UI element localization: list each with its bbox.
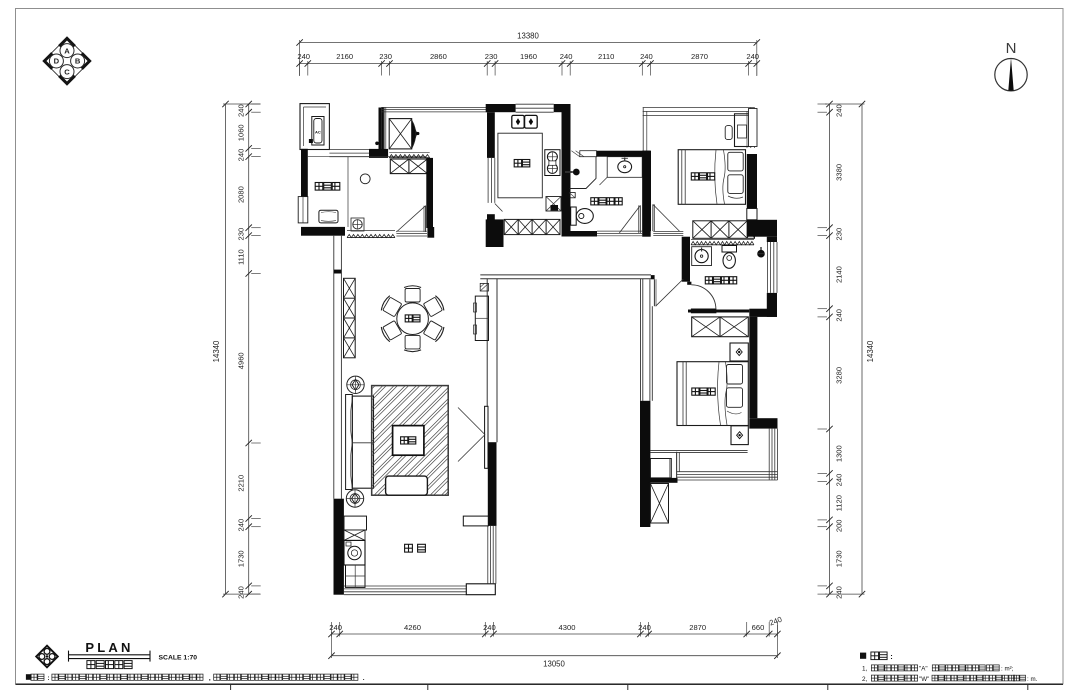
svg-text::: :	[47, 675, 49, 682]
svg-text:4300: 4300	[559, 623, 576, 632]
svg-text:240: 240	[835, 309, 844, 322]
svg-text:"A": "A"	[919, 666, 928, 673]
svg-text:230: 230	[379, 52, 392, 61]
svg-text:4960: 4960	[237, 352, 246, 369]
svg-text:3380: 3380	[835, 164, 844, 181]
svg-text:14340: 14340	[866, 340, 875, 362]
svg-text:13380: 13380	[517, 32, 539, 41]
svg-text:2210: 2210	[237, 475, 246, 492]
svg-text:2140: 2140	[835, 266, 844, 283]
svg-text:230: 230	[835, 228, 844, 241]
svg-text:240: 240	[329, 623, 342, 632]
svg-text:1110: 1110	[237, 249, 246, 265]
svg-text:B: B	[75, 57, 81, 66]
svg-text:1,: 1,	[862, 666, 868, 673]
svg-text:240: 240	[237, 104, 246, 117]
svg-text:240: 240	[768, 615, 783, 628]
svg-text:C: C	[64, 67, 70, 76]
svg-text:2080: 2080	[237, 186, 246, 203]
svg-text:D: D	[54, 57, 60, 66]
svg-text:1060: 1060	[237, 124, 246, 141]
svg-text:PLAN: PLAN	[85, 640, 133, 655]
svg-text:A: A	[64, 46, 70, 55]
svg-text:240: 240	[746, 52, 759, 61]
svg-text:240: 240	[835, 586, 844, 599]
svg-text:2860: 2860	[430, 52, 447, 61]
svg-text:: m²;: : m²;	[1001, 666, 1014, 673]
svg-text:AC: AC	[315, 130, 321, 135]
svg-text:240: 240	[237, 149, 246, 162]
svg-text:660: 660	[752, 623, 765, 632]
svg-text:1300: 1300	[835, 445, 844, 462]
svg-text:.: .	[363, 675, 365, 682]
svg-text:N: N	[1006, 40, 1017, 57]
svg-text:: m.: : m.	[1027, 676, 1038, 683]
svg-text:13050: 13050	[543, 660, 565, 669]
svg-text:230: 230	[237, 228, 246, 241]
svg-text:4260: 4260	[404, 623, 421, 632]
svg-text:240: 240	[638, 623, 651, 632]
svg-text:2870: 2870	[689, 623, 706, 632]
svg-text:,: ,	[209, 675, 211, 682]
svg-text:2,: 2,	[862, 676, 868, 683]
svg-text:1730: 1730	[835, 550, 844, 567]
svg-text:2160: 2160	[336, 52, 353, 61]
svg-text:200: 200	[835, 519, 844, 532]
svg-text::: :	[890, 652, 893, 661]
svg-text:240: 240	[297, 52, 310, 61]
svg-text:230: 230	[485, 52, 498, 61]
svg-text:240: 240	[237, 519, 246, 532]
svg-text:1730: 1730	[237, 550, 246, 567]
svg-text:240: 240	[560, 52, 573, 61]
svg-text:1120: 1120	[835, 495, 844, 511]
svg-text:240: 240	[483, 623, 496, 632]
svg-text:1960: 1960	[520, 52, 537, 61]
svg-text:SCALE 1:70: SCALE 1:70	[159, 654, 198, 661]
svg-text:240: 240	[640, 52, 653, 61]
svg-text:2870: 2870	[691, 52, 708, 61]
svg-text:3280: 3280	[835, 367, 844, 384]
svg-text:14340: 14340	[212, 340, 221, 362]
svg-text:"W": "W"	[919, 676, 929, 683]
svg-text:240: 240	[835, 474, 844, 487]
svg-text:240: 240	[835, 104, 844, 117]
svg-text:2110: 2110	[598, 52, 614, 61]
svg-text:240: 240	[237, 586, 246, 599]
